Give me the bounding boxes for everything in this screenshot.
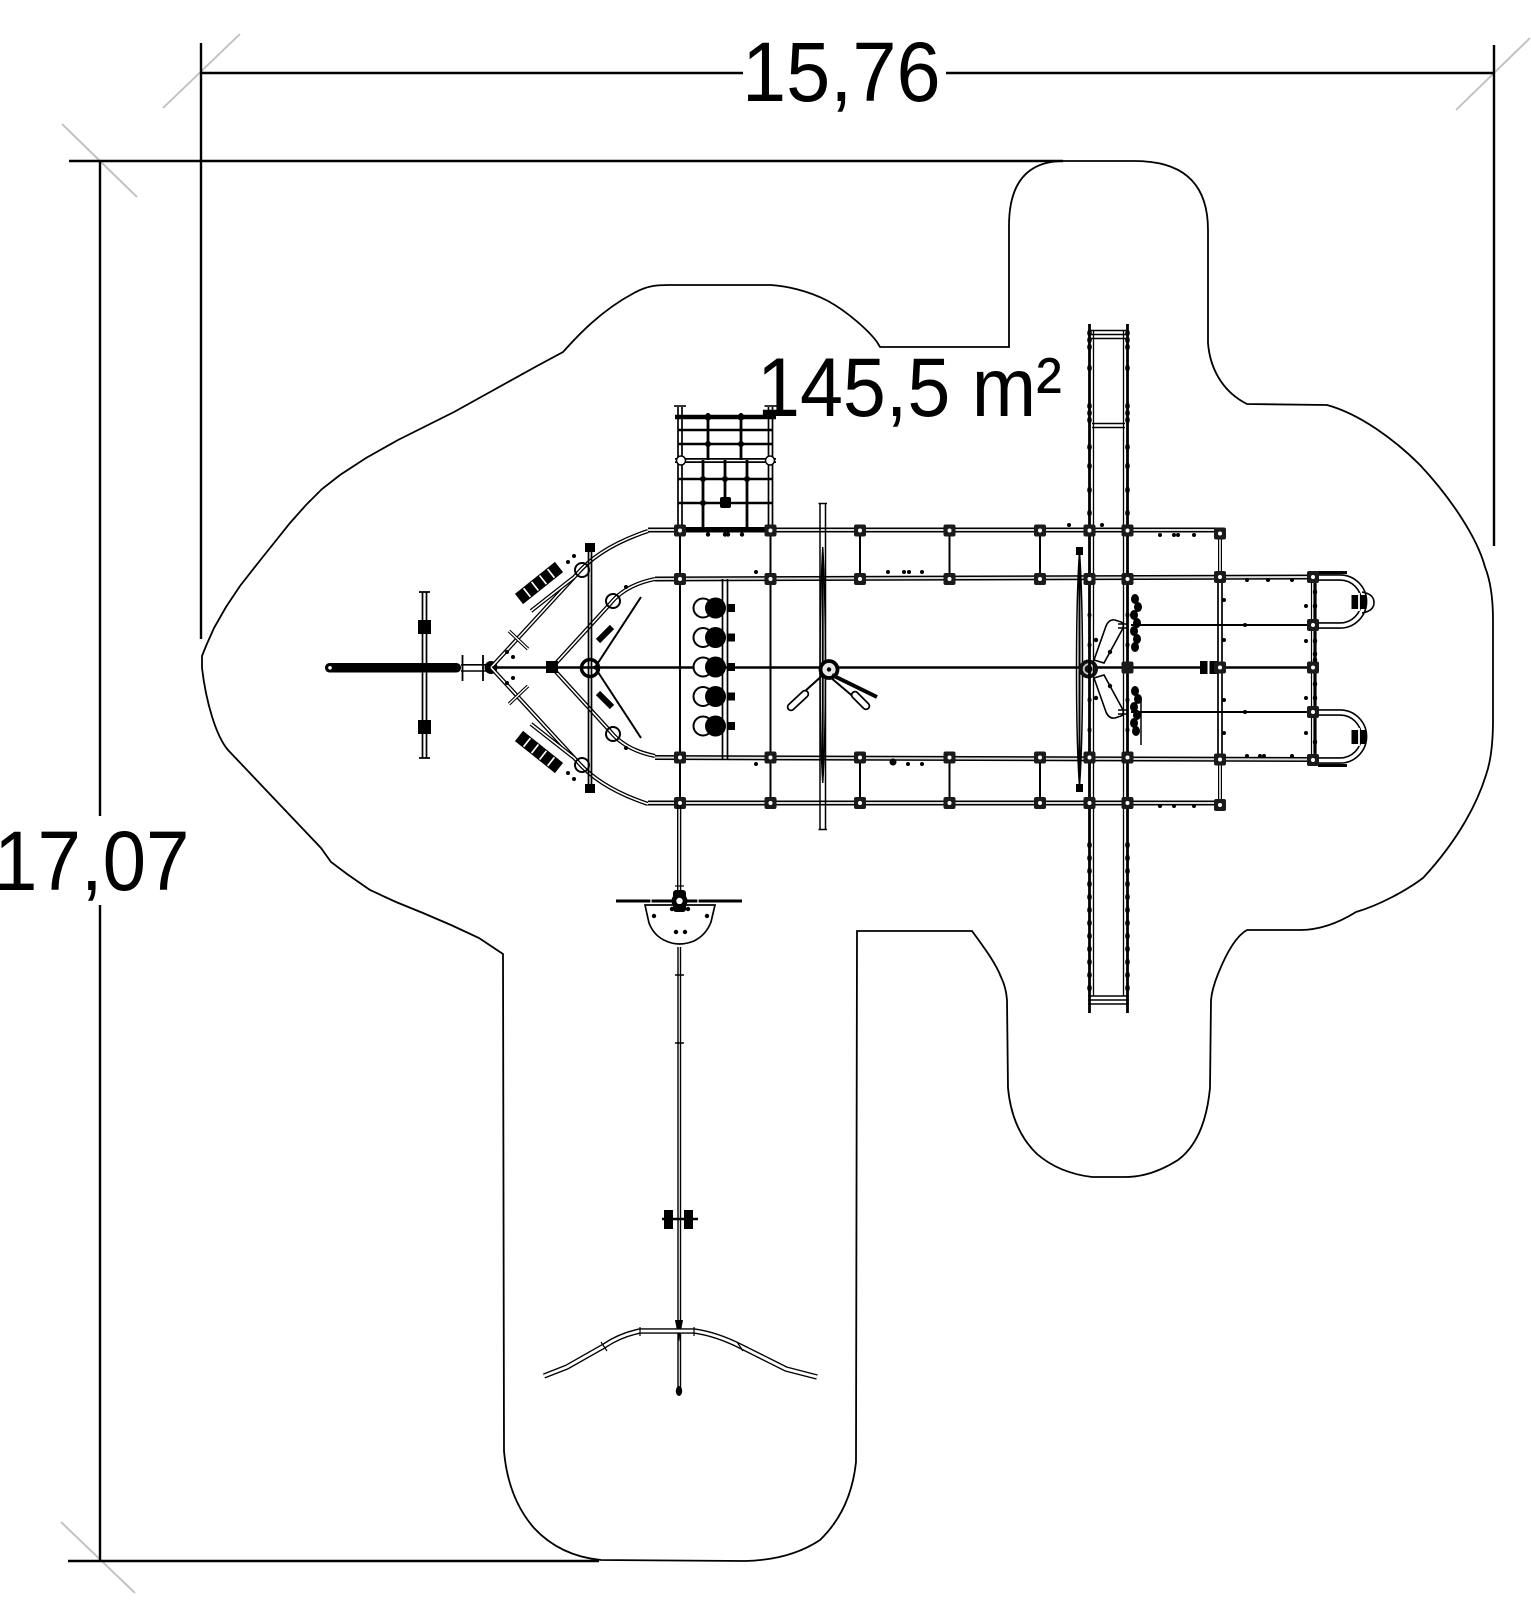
svg-text:145,5 m²: 145,5 m² (757, 341, 1062, 435)
svg-text:17,07: 17,07 (0, 815, 189, 908)
svg-text:15,76: 15,76 (742, 26, 941, 120)
